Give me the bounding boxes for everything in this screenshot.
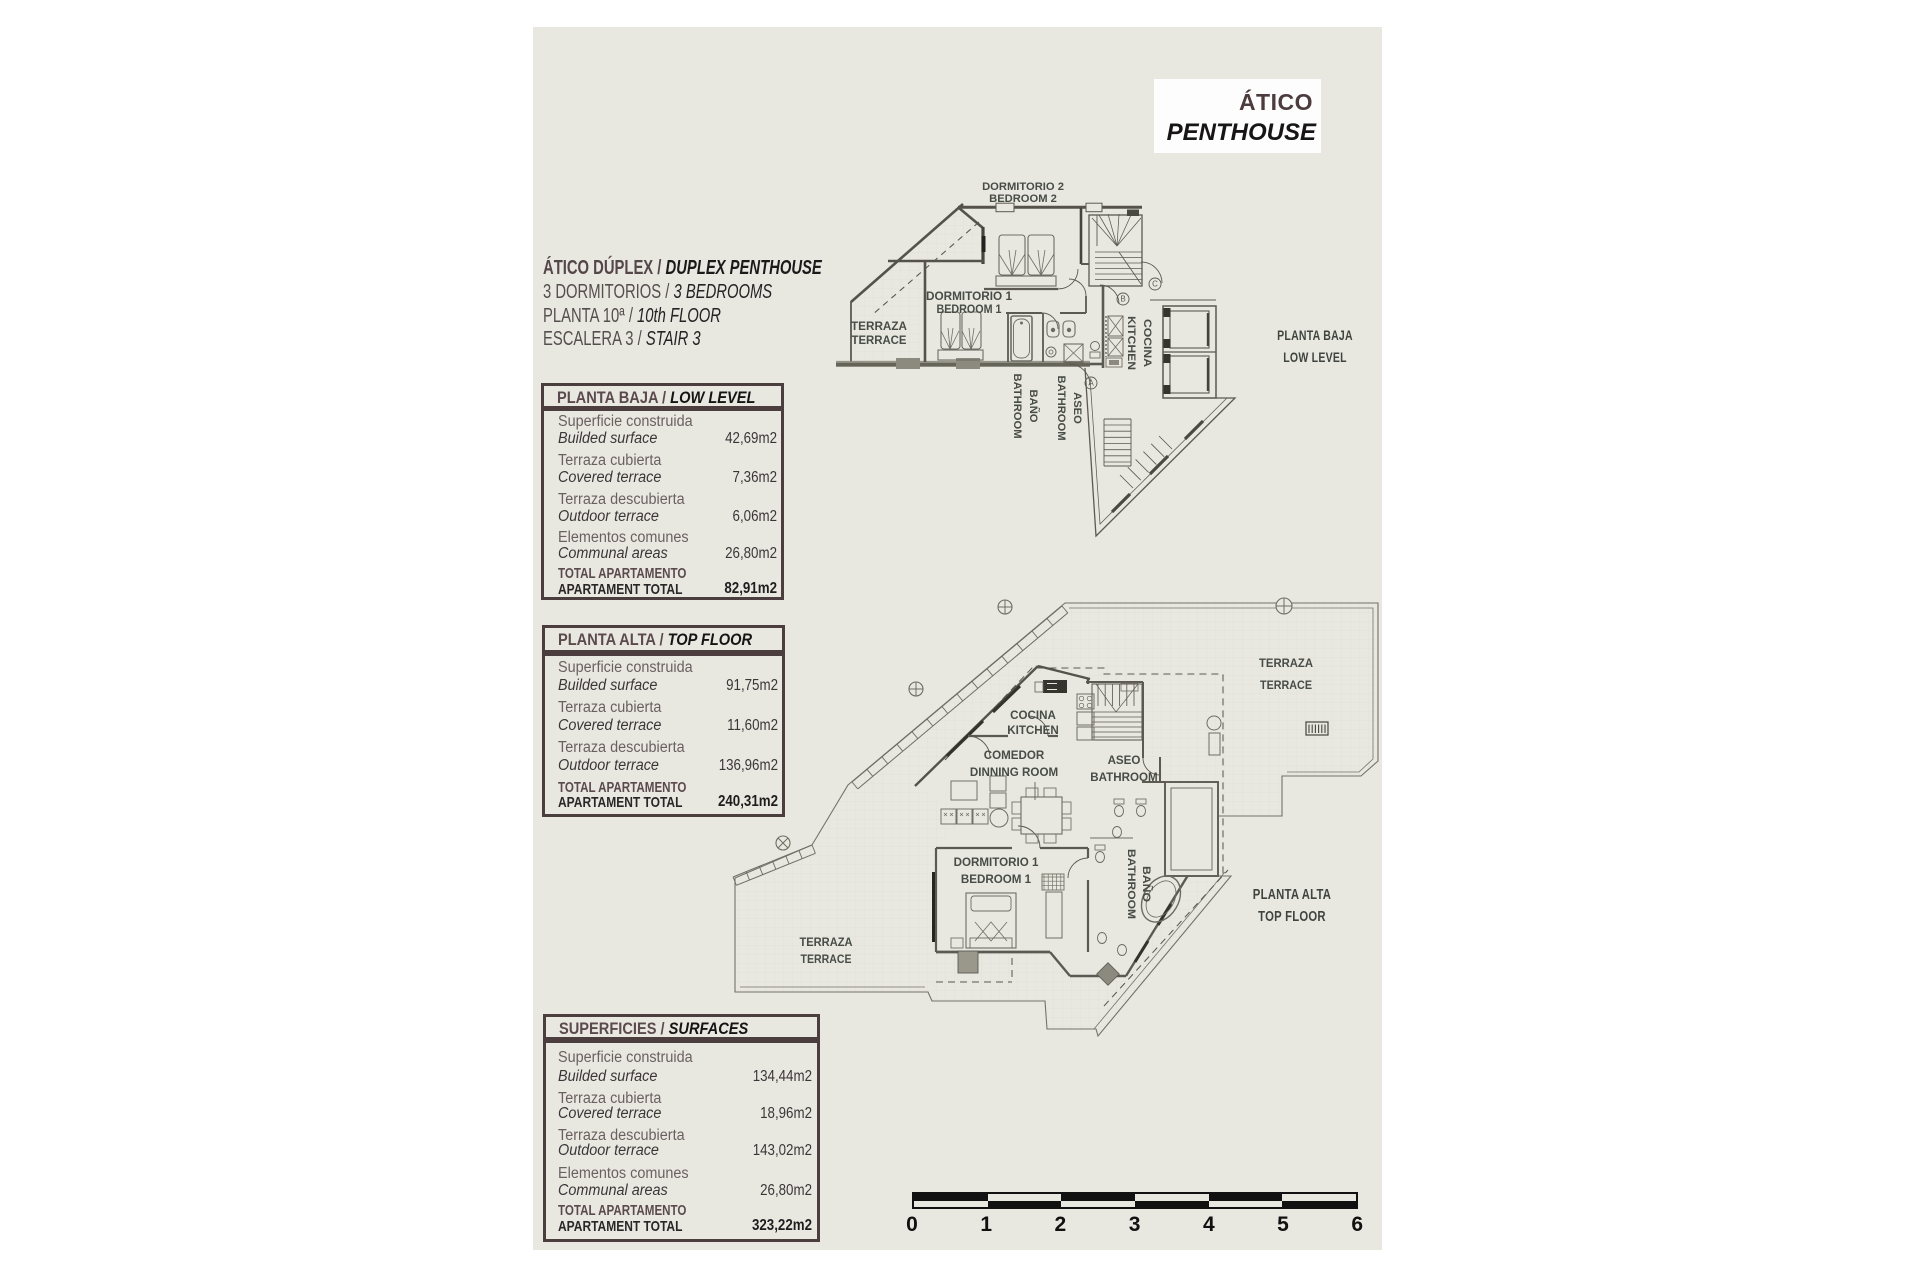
svg-text:B: B [1120, 295, 1125, 304]
svg-text:TERRAZA: TERRAZA [1259, 656, 1313, 670]
svg-text:TERRACE: TERRACE [801, 952, 852, 966]
svg-text:TERRACE: TERRACE [1260, 678, 1312, 692]
svg-text:DORMITORIO 1: DORMITORIO 1 [954, 856, 1039, 869]
svg-text:KITCHEN: KITCHEN [1125, 316, 1137, 370]
svg-text:BEDROOM 2: BEDROOM 2 [989, 193, 1057, 205]
svg-text:ASEO: ASEO [1108, 754, 1141, 767]
svg-text:KITCHEN: KITCHEN [1007, 724, 1059, 737]
svg-text:BAÑO: BAÑO [1140, 866, 1153, 902]
svg-text:COCINA: COCINA [1010, 709, 1056, 722]
svg-text:BAÑO: BAÑO [1027, 390, 1040, 423]
svg-text:BATHROOM: BATHROOM [1011, 373, 1023, 438]
svg-text:BATHROOM: BATHROOM [1125, 849, 1137, 919]
svg-text:DINNING ROOM: DINNING ROOM [970, 766, 1058, 779]
svg-text:COMEDOR: COMEDOR [984, 749, 1045, 762]
svg-text:ASEO: ASEO [1071, 392, 1083, 424]
svg-text:TERRAZA: TERRAZA [851, 319, 907, 333]
svg-text:BATHROOM: BATHROOM [1055, 375, 1067, 440]
svg-text:C: C [1152, 280, 1158, 289]
svg-text:TERRACE: TERRACE [852, 333, 907, 347]
svg-text:COCINA: COCINA [1141, 319, 1153, 367]
svg-text:BEDROOM 1: BEDROOM 1 [937, 302, 1002, 316]
svg-text:DORMITORIO 2: DORMITORIO 2 [982, 181, 1064, 193]
svg-text:BATHROOM: BATHROOM [1090, 771, 1157, 784]
svg-text:BEDROOM 1: BEDROOM 1 [961, 873, 1032, 886]
svg-text:DORMITORIO 1: DORMITORIO 1 [926, 289, 1012, 303]
svg-text:A: A [1088, 379, 1094, 388]
svg-text:TERRAZA: TERRAZA [800, 935, 853, 949]
